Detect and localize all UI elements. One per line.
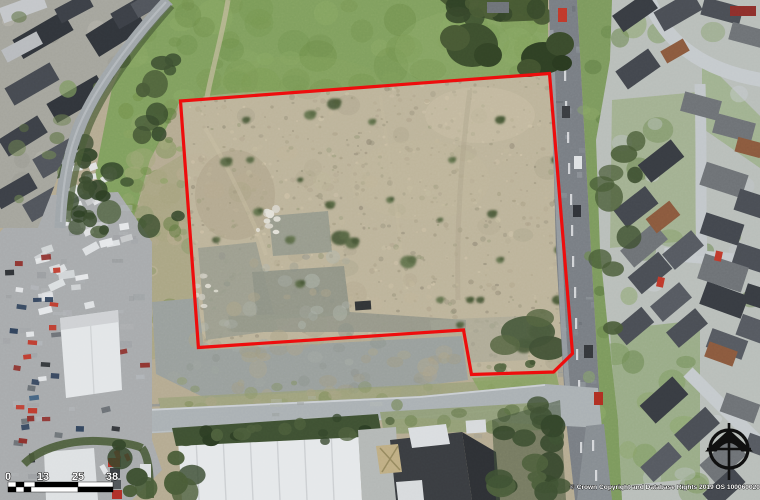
svg-text:13: 13 (37, 471, 49, 483)
svg-text:25: 25 (72, 471, 84, 483)
svg-text:0: 0 (5, 471, 11, 483)
svg-text:38: 38 (106, 471, 118, 483)
svg-text:© Crown Copyright and Database: © Crown Copyright and Database Rights 20… (570, 483, 760, 491)
